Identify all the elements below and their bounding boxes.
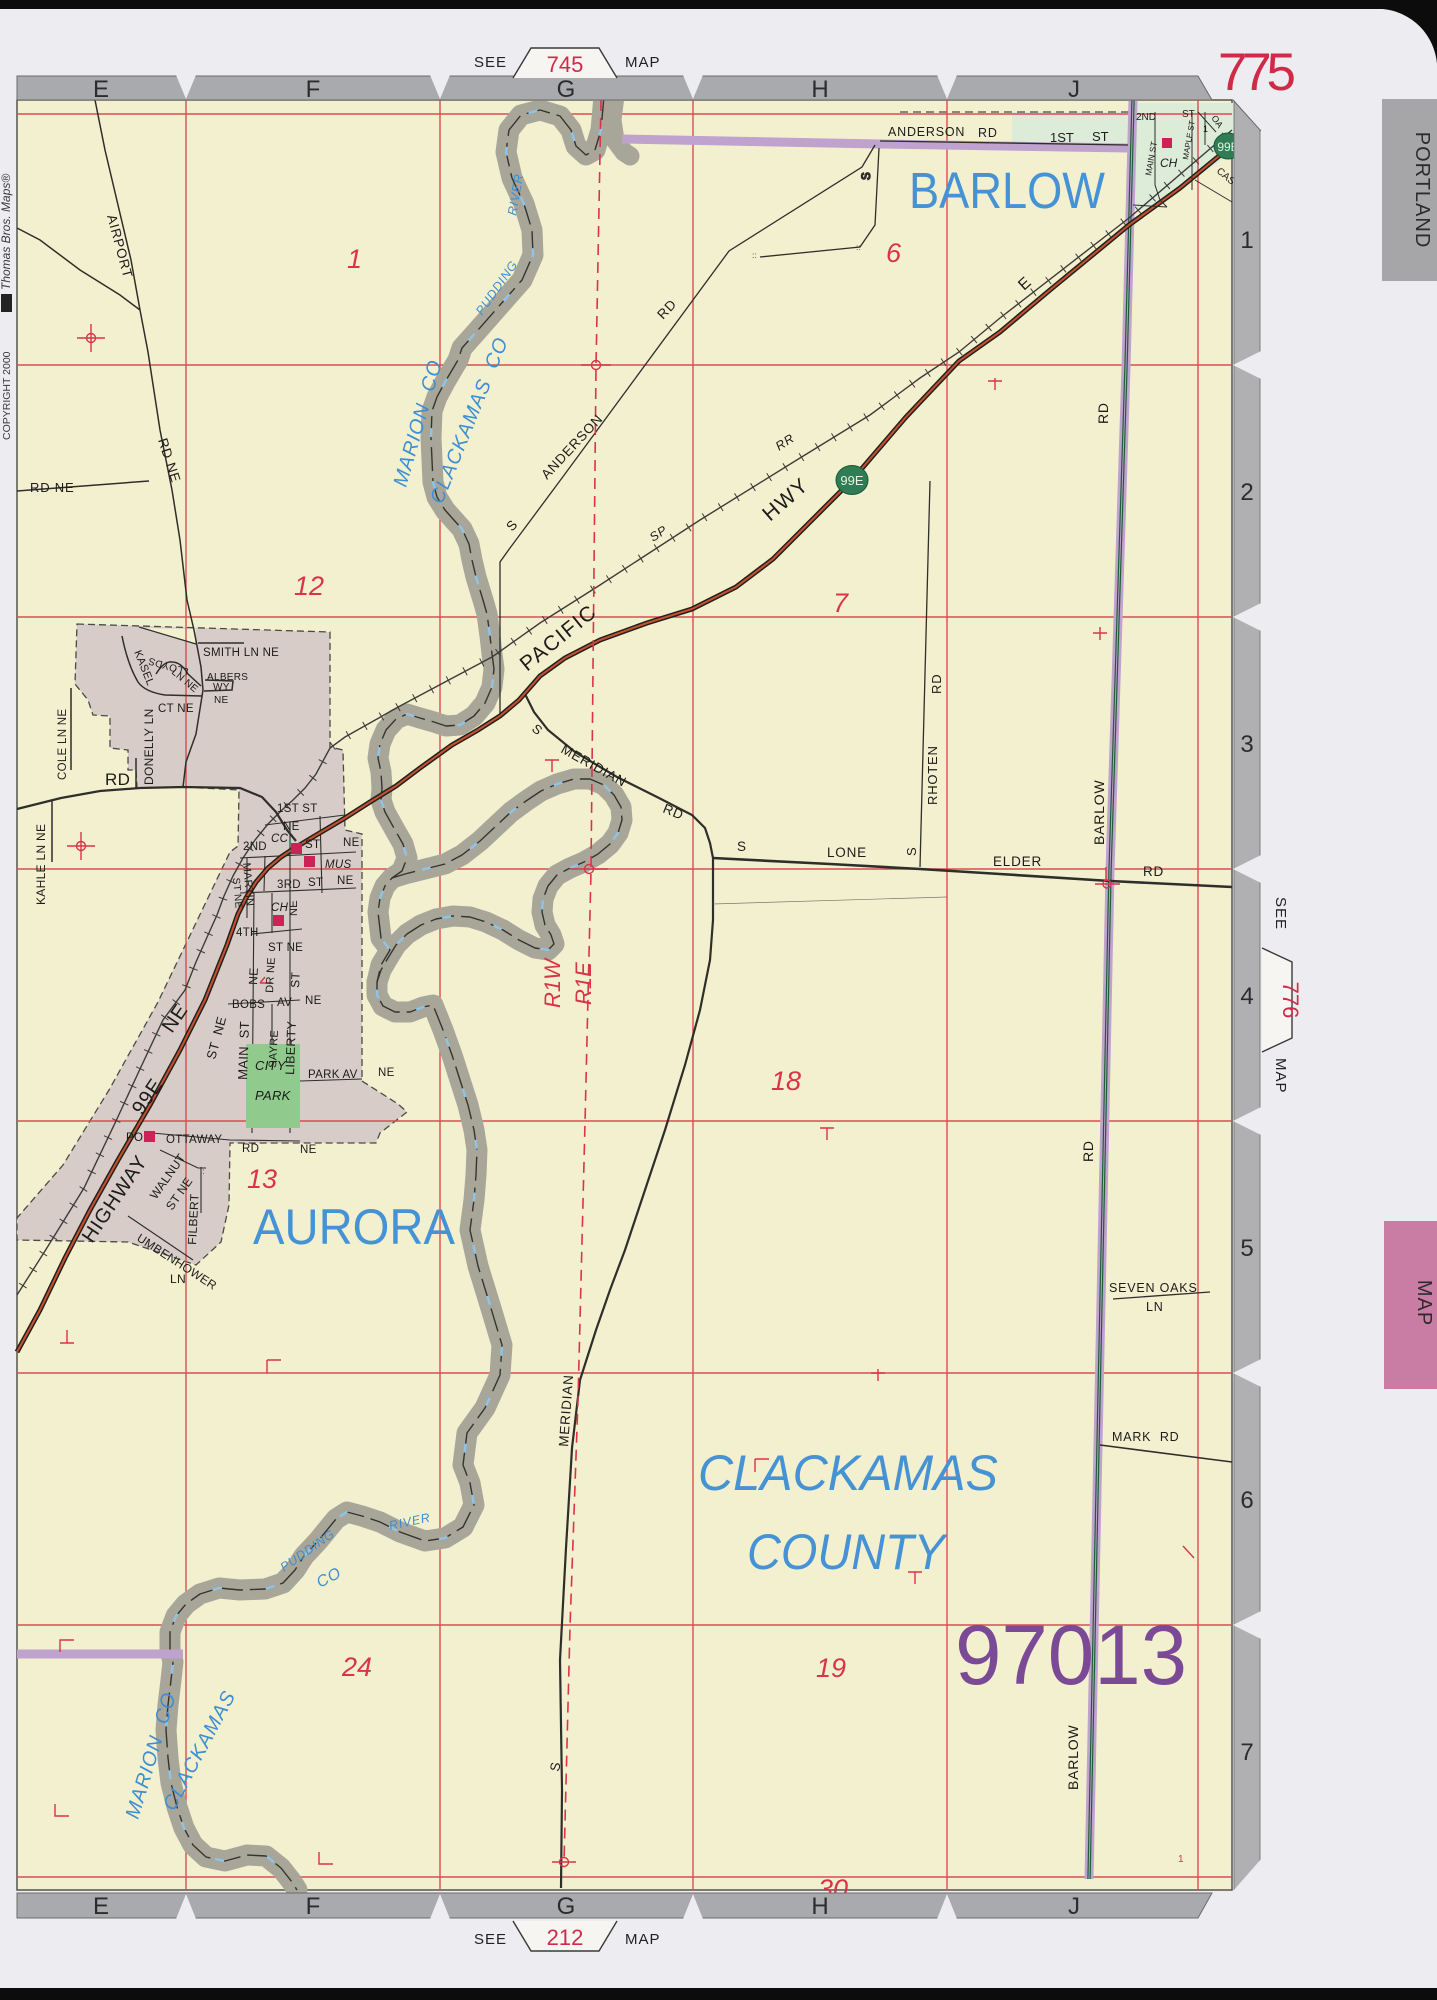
svg-text:RHOTEN: RHOTEN: [925, 745, 940, 805]
svg-text:LN: LN: [170, 1272, 186, 1286]
svg-text:G: G: [557, 1893, 576, 1920]
svg-text:CH: CH: [1160, 156, 1178, 170]
svg-text:BARLOW: BARLOW: [1065, 1725, 1081, 1790]
svg-text:3: 3: [1240, 731, 1253, 758]
svg-text:BARLOW: BARLOW: [1091, 780, 1107, 845]
svg-text:2ND: 2ND: [243, 841, 267, 853]
svg-text:ST: ST: [1182, 109, 1195, 120]
svg-text:SEVEN OAKS: SEVEN OAKS: [1109, 1281, 1198, 1295]
svg-text:J: J: [1068, 76, 1080, 103]
svg-text:MAP: MAP: [1413, 1280, 1435, 1326]
svg-text:CLACKAMAS: CLACKAMAS: [698, 1445, 998, 1501]
svg-text:LN: LN: [1146, 1300, 1164, 1314]
svg-text:MARK RD: MARK RD: [1112, 1430, 1180, 1444]
svg-text:775: 775: [1218, 43, 1298, 102]
svg-text:MAP: MAP: [625, 1931, 661, 1948]
svg-text:2: 2: [1240, 479, 1253, 506]
svg-text:NE: NE: [288, 900, 300, 916]
svg-text:7: 7: [1240, 1739, 1253, 1766]
svg-text:SEE: SEE: [1272, 897, 1289, 930]
svg-text:BOBS: BOBS: [232, 999, 265, 1011]
svg-text:1: 1: [1203, 124, 1208, 134]
svg-text:SEE: SEE: [474, 54, 507, 71]
svg-text:99E: 99E: [840, 473, 863, 488]
svg-text:NE: NE: [343, 837, 360, 849]
svg-text:OTTAWAY: OTTAWAY: [166, 1134, 222, 1146]
svg-text:6: 6: [886, 238, 902, 268]
svg-text:FILBERT: FILBERT: [185, 1193, 202, 1245]
svg-text:F: F: [306, 76, 321, 103]
svg-text:CITY: CITY: [255, 1058, 287, 1073]
svg-text:ST NE: ST NE: [268, 942, 303, 954]
svg-text:E: E: [93, 1893, 109, 1920]
svg-text:AURORA: AURORA: [253, 1199, 456, 1255]
svg-text:MAIN ST: MAIN ST: [235, 1021, 252, 1080]
svg-text:4TH: 4TH: [236, 927, 259, 939]
svg-text:2ND: 2ND: [1136, 112, 1156, 123]
svg-text:13: 13: [247, 1164, 277, 1194]
svg-text:1ST: 1ST: [1050, 130, 1074, 145]
svg-text:5: 5: [1240, 1235, 1253, 1262]
svg-text:R1W: R1W: [540, 957, 565, 1008]
svg-text:S: S: [904, 847, 919, 856]
svg-text:1: 1: [347, 244, 362, 274]
svg-text:RD: RD: [1095, 402, 1111, 424]
svg-text:NE: NE: [283, 821, 300, 833]
svg-text:S: S: [861, 172, 873, 180]
svg-text:RD NE: RD NE: [30, 480, 74, 495]
svg-text:RD: RD: [105, 770, 130, 789]
svg-text:776: 776: [1278, 982, 1303, 1019]
svg-text:DONELLY LN: DONELLY LN: [142, 708, 156, 785]
svg-text:CT NE: CT NE: [158, 703, 194, 715]
svg-text:::: ::: [200, 1167, 204, 1176]
svg-text:NE: NE: [337, 875, 354, 887]
svg-text:CC: CC: [271, 833, 289, 845]
svg-text:745: 745: [547, 52, 584, 77]
svg-text:ANDERSON: ANDERSON: [888, 125, 965, 139]
svg-text:RD: RD: [978, 126, 998, 140]
svg-text:AV: AV: [277, 997, 292, 1009]
svg-text:PARK: PARK: [255, 1088, 292, 1103]
svg-text:SMITH LN NE: SMITH LN NE: [203, 647, 279, 659]
svg-text:::: ::: [856, 243, 860, 252]
svg-text:E: E: [93, 76, 109, 103]
svg-text:COUNTY: COUNTY: [747, 1524, 948, 1580]
svg-text:CH: CH: [271, 902, 289, 914]
svg-text:WY: WY: [213, 682, 230, 693]
svg-text:NE: NE: [246, 967, 261, 985]
svg-text:RD: RD: [242, 1143, 259, 1155]
svg-text:KAHLE LN NE: KAHLE LN NE: [34, 824, 48, 905]
svg-text:COLE LN NE: COLE LN NE: [57, 709, 69, 780]
svg-text:NE: NE: [378, 1067, 395, 1079]
svg-text:24: 24: [341, 1652, 372, 1682]
svg-text:18: 18: [771, 1066, 801, 1096]
svg-text:H: H: [811, 1893, 828, 1920]
svg-text:NE: NE: [214, 695, 229, 706]
svg-text:1ST ST: 1ST ST: [277, 803, 318, 815]
svg-text:97013: 97013: [955, 1608, 1187, 1702]
svg-text:NE: NE: [300, 1144, 317, 1156]
svg-text:ST: ST: [305, 839, 320, 851]
svg-text:DR NE: DR NE: [264, 957, 278, 993]
svg-text:H: H: [811, 76, 828, 103]
svg-text:::: ::: [752, 251, 756, 260]
svg-text:RD: RD: [1143, 864, 1164, 879]
svg-text:LONE: LONE: [827, 845, 867, 860]
svg-text:19: 19: [816, 1653, 846, 1683]
svg-text:PO: PO: [126, 1132, 143, 1144]
svg-text:4: 4: [1240, 983, 1253, 1010]
svg-text:ST: ST: [308, 877, 323, 889]
svg-text:PARK AV: PARK AV: [308, 1069, 358, 1081]
svg-text:G: G: [557, 76, 576, 103]
svg-text:Thomas Bros. Maps®: Thomas Bros. Maps®: [0, 174, 13, 290]
svg-text:S: S: [737, 839, 747, 854]
svg-text:1: 1: [1240, 227, 1253, 254]
svg-text:RD: RD: [1080, 1140, 1096, 1162]
svg-text:F: F: [306, 1893, 321, 1920]
svg-text:7: 7: [833, 588, 849, 618]
svg-text:RD: RD: [929, 674, 944, 694]
svg-text:ELDER: ELDER: [993, 854, 1042, 869]
svg-text:6: 6: [1240, 1487, 1253, 1514]
svg-text:MAP: MAP: [1272, 1058, 1289, 1094]
svg-text:R1E: R1E: [571, 962, 596, 1005]
svg-text:MAP: MAP: [625, 54, 661, 71]
svg-text:MUS: MUS: [325, 859, 351, 871]
svg-text:PORTLAND: PORTLAND: [1411, 132, 1433, 249]
svg-text:SEE: SEE: [474, 1931, 507, 1948]
svg-text:12: 12: [294, 571, 324, 601]
svg-text:J: J: [1068, 1893, 1080, 1920]
svg-text:ST: ST: [1092, 129, 1109, 144]
svg-text:212: 212: [547, 1925, 584, 1950]
svg-text:NE: NE: [305, 995, 322, 1007]
svg-text:3RD: 3RD: [277, 879, 301, 891]
svg-text:1: 1: [1178, 1854, 1184, 1865]
svg-text:COPYRIGHT 2000: COPYRIGHT 2000: [1, 351, 13, 440]
svg-text:BARLOW: BARLOW: [909, 162, 1105, 219]
svg-text:ST: ST: [288, 971, 303, 988]
